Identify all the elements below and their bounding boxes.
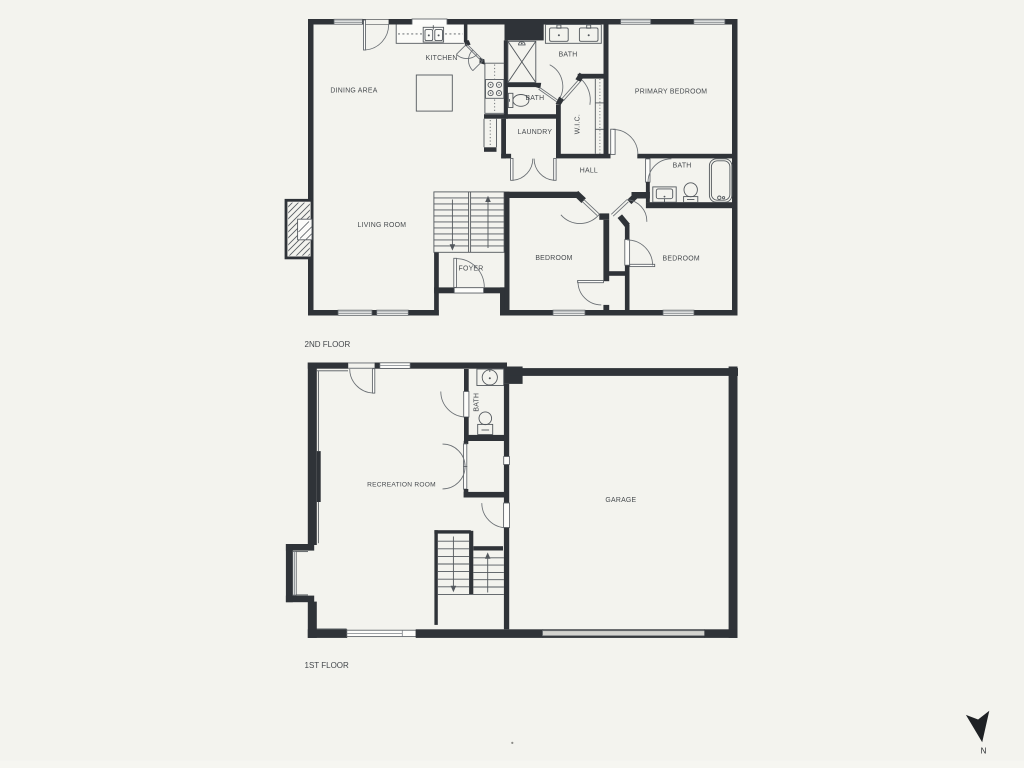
svg-text:PRIMARY BEDROOM: PRIMARY BEDROOM	[635, 88, 707, 95]
svg-text:BATH: BATH	[473, 393, 480, 412]
svg-text:KITCHEN: KITCHEN	[426, 55, 458, 62]
svg-text:LIVING ROOM: LIVING ROOM	[358, 222, 407, 229]
svg-text:BATH: BATH	[559, 52, 578, 59]
svg-text:BEDROOM: BEDROOM	[535, 255, 572, 262]
svg-text:GARAGE: GARAGE	[605, 497, 636, 504]
svg-text:BATH: BATH	[673, 162, 692, 169]
svg-text:RECREATION ROOM: RECREATION ROOM	[367, 482, 436, 489]
svg-text:N: N	[981, 746, 987, 755]
svg-text:LAUNDRY: LAUNDRY	[518, 129, 553, 136]
svg-text:DINING AREA: DINING AREA	[330, 88, 377, 95]
svg-text:HALL: HALL	[580, 168, 598, 175]
svg-text:1ST FLOOR: 1ST FLOOR	[305, 661, 350, 670]
svg-text:FOYER: FOYER	[459, 266, 484, 273]
svg-text:2ND FLOOR: 2ND FLOOR	[305, 340, 351, 349]
svg-text:W.I.C.: W.I.C.	[574, 114, 581, 134]
svg-text:BATH: BATH	[525, 95, 544, 102]
svg-text:BEDROOM: BEDROOM	[663, 255, 700, 262]
